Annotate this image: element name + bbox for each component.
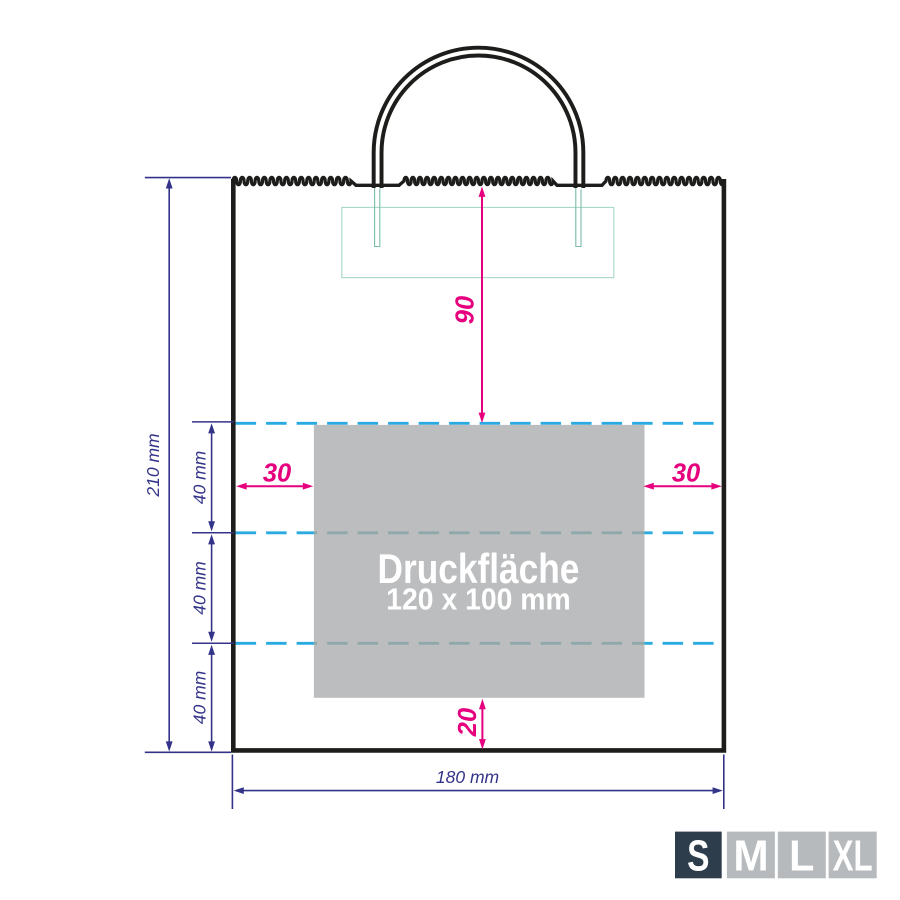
svg-text:M: M — [733, 832, 768, 881]
svg-text:30: 30 — [672, 460, 700, 488]
svg-text:40 mm: 40 mm — [190, 671, 210, 724]
svg-text:20: 20 — [454, 708, 482, 737]
svg-text:40 mm: 40 mm — [190, 451, 210, 504]
svg-text:30: 30 — [263, 460, 291, 488]
svg-text:210 mm: 210 mm — [143, 433, 163, 497]
svg-text:L: L — [789, 832, 814, 880]
svg-text:90: 90 — [452, 296, 480, 324]
svg-text:180 mm: 180 mm — [436, 767, 499, 787]
svg-text:120 x 100 mm: 120 x 100 mm — [386, 583, 570, 617]
svg-text:XL: XL — [833, 833, 873, 881]
svg-text:40 mm: 40 mm — [190, 561, 210, 614]
svg-text:S: S — [687, 833, 709, 881]
